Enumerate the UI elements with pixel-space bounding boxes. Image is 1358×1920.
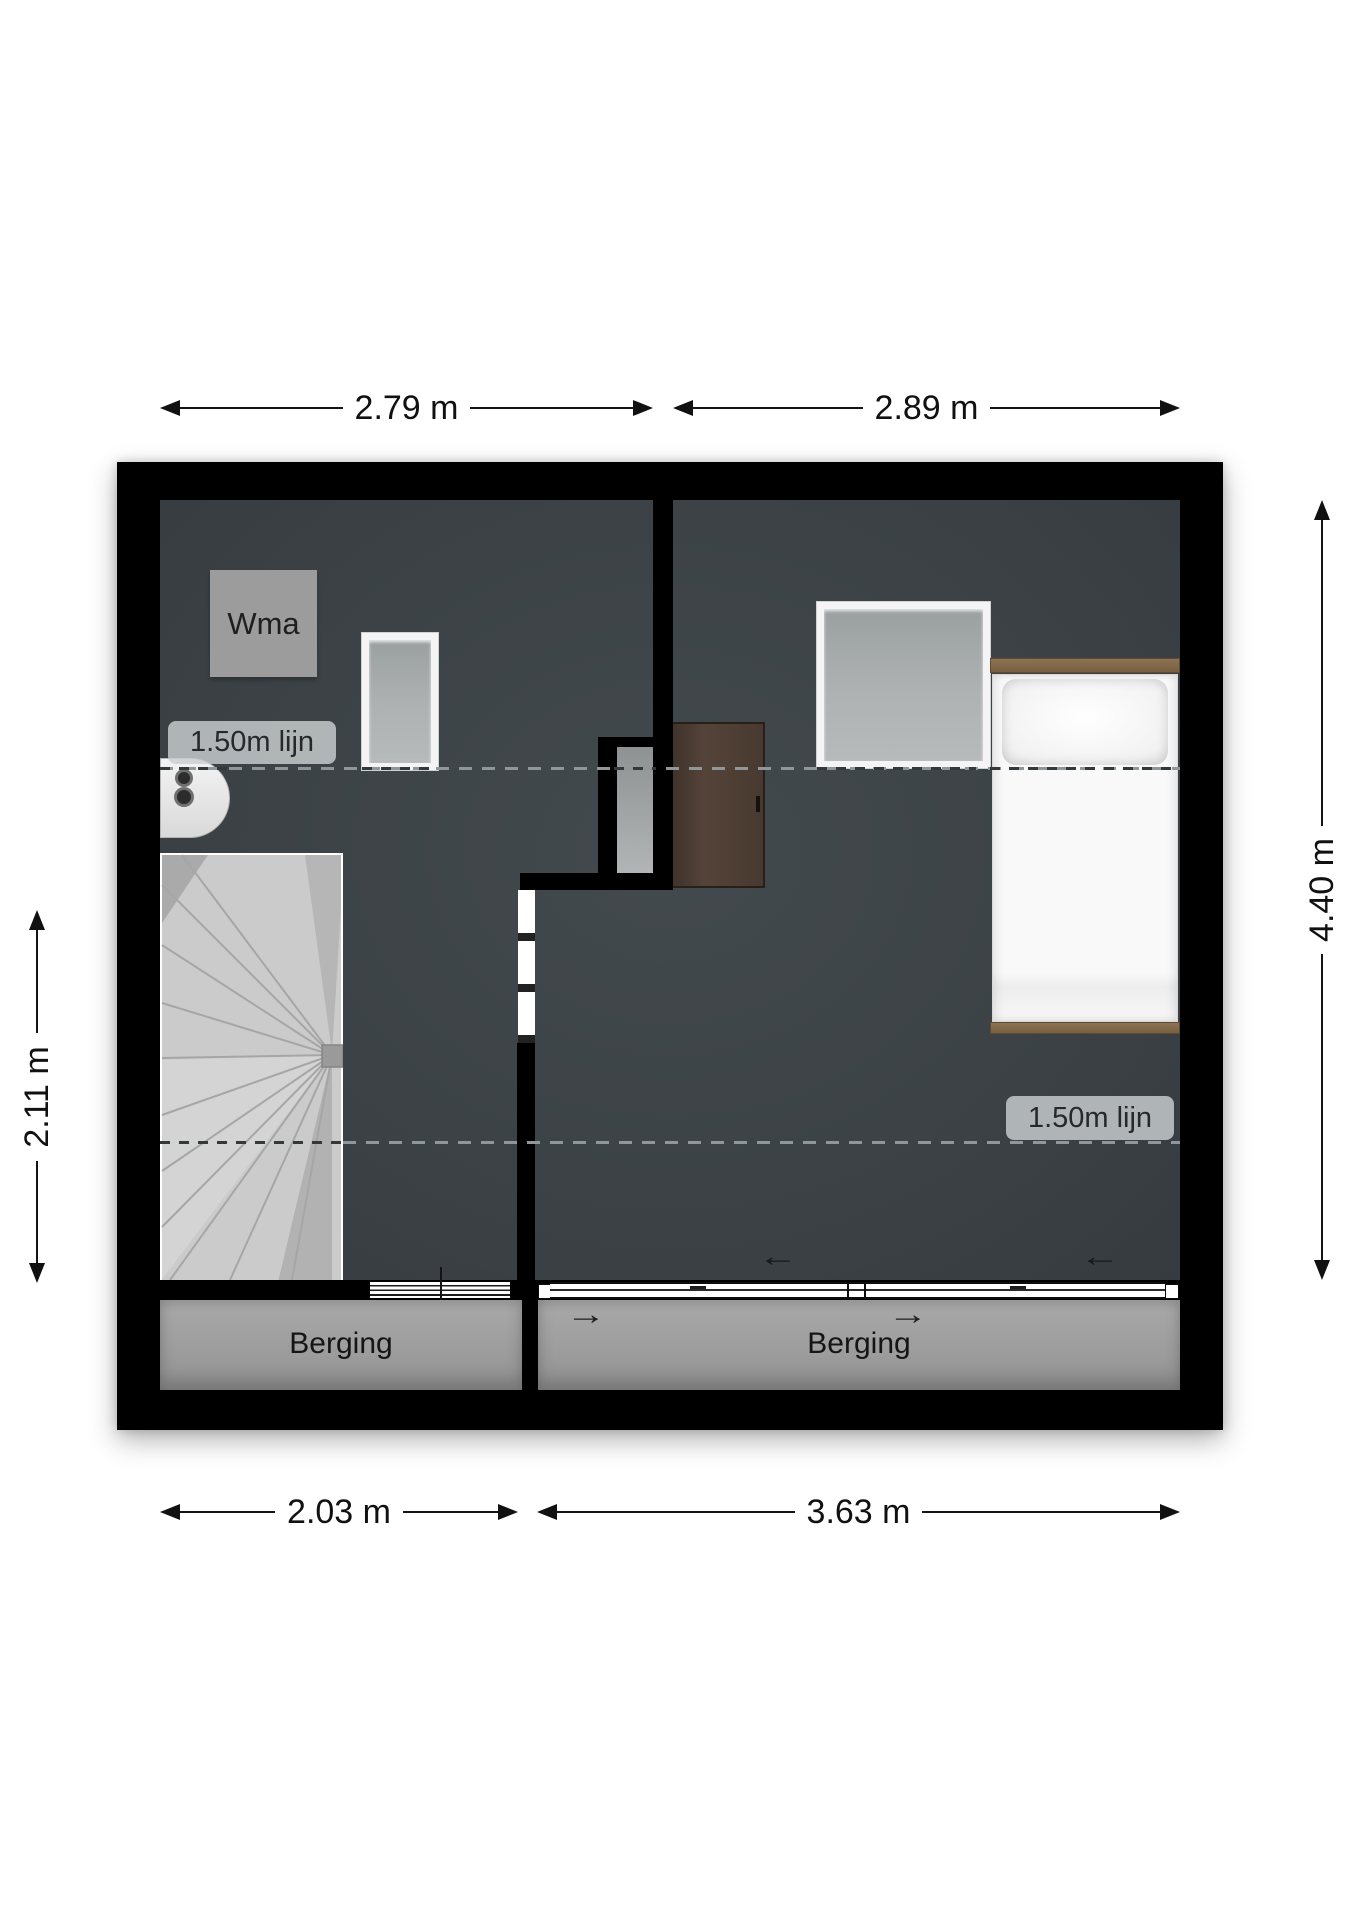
dimension-line [922, 1511, 1160, 1514]
height-line-150-upper-segment [362, 767, 438, 770]
dimension-line [403, 1511, 498, 1514]
storage-divider-wall [522, 1300, 538, 1390]
height-line-label-right-text: 1.50m lijn [1028, 1102, 1152, 1135]
partition-wall-upper [653, 500, 673, 890]
arrow-left-icon: ← [758, 1240, 799, 1273]
dimension-top-right-value: 2.89 m [863, 389, 991, 428]
dimension-arrow-icon [160, 1504, 180, 1520]
dimension-bottom-right-value: 3.63 m [795, 1493, 923, 1532]
bed-footboard [990, 1022, 1180, 1034]
slide-direction-arrow: ← [1080, 1240, 1121, 1274]
dimension-arrow-icon [537, 1504, 557, 1520]
skylight-window-left [362, 633, 438, 770]
height-line-150-upper-segment [817, 767, 976, 770]
dimension-line [470, 407, 633, 410]
dimension-line [693, 407, 863, 410]
dimension-arrow-icon [29, 1263, 45, 1283]
dimension-top-right: 2.89 m [673, 388, 1180, 428]
boiler-dial-icon [178, 772, 190, 784]
dimension-line [990, 407, 1160, 410]
arrow-right-icon: → [566, 1298, 607, 1331]
track-end-cap [1165, 1284, 1179, 1299]
shaft-wall-top [598, 737, 673, 747]
dimension-line [557, 1511, 795, 1514]
panel-joint [864, 1282, 866, 1299]
sliding-door-track [550, 1282, 1165, 1299]
winder-staircase [160, 853, 343, 1282]
partition-wall-lower [517, 1043, 535, 1283]
wardrobe-handle-icon [756, 796, 760, 812]
slide-direction-arrow: ← [758, 1240, 799, 1274]
slide-direction-arrow: → [888, 1298, 929, 1332]
dimension-line [180, 1511, 275, 1514]
dimension-arrow-icon [498, 1504, 518, 1520]
wardrobe [670, 722, 765, 888]
panel-joint [847, 1282, 849, 1299]
dimension-arrow-icon [633, 400, 653, 416]
storage-label-right-text: Berging [807, 1327, 910, 1361]
dimension-arrow-icon [160, 400, 180, 416]
track-rail-line [550, 1289, 1165, 1291]
height-line-label-right: 1.50m lijn [1006, 1096, 1174, 1140]
slide-direction-arrow: → [566, 1298, 607, 1332]
dimension-arrow-icon [673, 400, 693, 416]
dimension-bottom-right: 3.63 m [537, 1492, 1180, 1532]
duct-shaft [617, 747, 653, 873]
floorplan-canvas: Wma [0, 0, 1358, 1920]
skylight-window-right [817, 602, 990, 768]
height-line-150-lower [343, 1141, 1180, 1144]
storage-label-right: Berging [538, 1322, 1180, 1366]
dimension-bottom-left: 2.03 m [160, 1492, 518, 1532]
storage-label-left: Berging [160, 1322, 522, 1366]
dimension-arrow-icon [1314, 1260, 1330, 1280]
panel-handle-mark [690, 1286, 706, 1289]
height-line-label-left-text: 1.50m lijn [190, 726, 314, 759]
arrow-left-icon: ← [1080, 1240, 1121, 1273]
washing-machine-position: Wma [210, 570, 317, 677]
dimension-side-right: 4.40 m [1302, 500, 1342, 1280]
dimension-line [180, 407, 343, 410]
height-line-150-lower-segment [160, 1141, 343, 1144]
bed-pillow [1002, 679, 1168, 765]
dimension-side-left-value: 2.11 m [0, 1077, 101, 1117]
bed-headboard [990, 658, 1180, 673]
door-opening [518, 890, 535, 1043]
dimension-top-left: 2.79 m [160, 388, 653, 428]
dimension-side-left: 2.11 m [17, 910, 57, 1283]
height-line-label-left: 1.50m lijn [168, 721, 336, 764]
dimension-side-right-value: 4.40 m [1258, 870, 1358, 910]
dimension-arrow-icon [1314, 500, 1330, 520]
arrow-right-icon: → [888, 1298, 929, 1331]
washing-machine-label: Wma [227, 606, 299, 642]
dimension-line [36, 930, 39, 1033]
dimension-arrow-icon [29, 910, 45, 930]
height-line-150-upper-segment [160, 767, 232, 770]
boiler-dial-icon [177, 790, 191, 804]
dimension-line [36, 1161, 39, 1264]
dimension-line [1321, 520, 1324, 826]
dimension-line [1321, 954, 1324, 1260]
height-line-150-upper-segment [614, 767, 656, 770]
dimension-bottom-left-value: 2.03 m [275, 1493, 403, 1532]
shaft-wall-bottom [520, 873, 670, 890]
dimension-arrow-icon [1160, 1504, 1180, 1520]
panel-handle-mark [1010, 1286, 1026, 1289]
dimension-arrow-icon [1160, 400, 1180, 416]
storage-label-left-text: Berging [289, 1327, 392, 1361]
height-line-150-upper-segment [990, 767, 1180, 770]
dimension-top-left-value: 2.79 m [343, 389, 471, 428]
